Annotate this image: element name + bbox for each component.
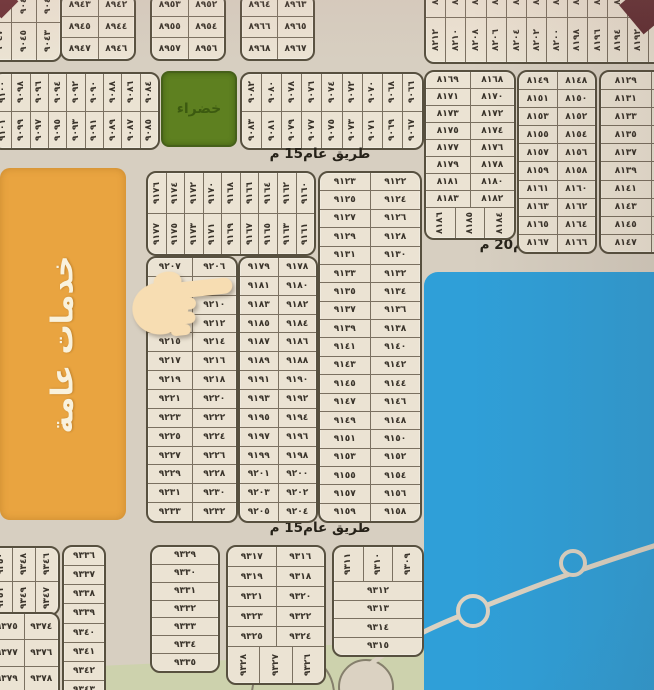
plot-row: ٩٣١٢ <box>334 582 422 600</box>
plot-parcel: ٩١٧٢ <box>184 173 203 213</box>
plot-parcel: ٩٣٧٤ <box>24 614 59 639</box>
plot-number: ٩١٦٦ <box>245 182 255 204</box>
plot-row: ٨١٥٥٨١٥٤ <box>519 125 595 143</box>
plot-number: ٨١٦٠ <box>565 184 587 194</box>
plot-parcel: ٩٢٠٠ <box>278 465 317 483</box>
plot-number: ٨١٨٣ <box>437 194 459 204</box>
plot-block-9309: ٩٣١١٩٣١٠٩٣٠٩ ٩٣١٢٩٣١٣٩٣١٤٩٣١٥ <box>332 545 424 657</box>
plot-parcel: ٩٣٢٧ <box>259 647 291 683</box>
plot-parcel: ٨١٣١ <box>601 90 651 107</box>
plot-parcel: ٨١٦٦ <box>557 235 596 252</box>
plot-number: ٩١٠١ <box>0 119 8 141</box>
plot-row: ٨١٦٥٨١٦٤ <box>519 216 595 234</box>
plot-number: ٩١٦٨ <box>226 182 236 204</box>
plot-parcel: ٩٣٤٧ <box>35 582 58 615</box>
plot-row: ٩٣٣٧ <box>64 565 104 584</box>
plot-number: ٨١٨٤ <box>495 212 505 234</box>
plot-number: ٩٠٨٩ <box>108 119 118 141</box>
plot-parcel: ٩٠٩٩ <box>11 112 29 149</box>
plot-number: ٨١٥٣ <box>527 112 549 122</box>
plot-parcel: ٨١٩٦ <box>587 18 607 63</box>
plot-grid: ٩٣٧٥٩٣٧٤٩٣٧٧٩٣٧٦٩٣٧٩٩٣٧٨٩٣٨١٩٣٨٠ <box>0 614 58 690</box>
plot-parcel: ٨١٦١ <box>519 181 557 198</box>
plot-row: ٨١٤٣٨١٤٢ <box>601 198 654 216</box>
plot-number: ٩١٨٣ <box>248 300 270 310</box>
plot-number: ٩٠٩٢ <box>71 81 81 103</box>
plot-parcel: ٩٣١٥ <box>334 638 422 656</box>
plot-row: ٩١٩٧٩١٩٦ <box>240 427 316 446</box>
plot-parcel: ٨١٥٠ <box>557 90 596 107</box>
plot-number: ٨٩٥٧ <box>159 44 181 54</box>
plot-parcel: ٩٣٤٣ <box>64 681 104 690</box>
plot-parcel: ٩١٩٦ <box>278 428 317 446</box>
plot-block-8963: ٨٩٦٤٨٩٦٣٨٩٦٦٨٩٦٥٨٩٦٨٨٩٦٧ <box>240 0 315 61</box>
plot-parcel: ٩١٤٧ <box>320 394 370 411</box>
plot-row: ٩١٣٩٩١٣٨ <box>320 319 420 337</box>
plot-number: ٨١٧٠ <box>481 92 503 102</box>
plot-parcel: ٩٠٧٧ <box>301 112 321 149</box>
plot-number: ٩٠٧١ <box>367 119 377 141</box>
plot-number: ٩١٦٧ <box>245 223 255 245</box>
plot-number: ٩٣٧٦ <box>30 648 52 658</box>
plot-parcel: ٩٠٩٧ <box>30 112 48 149</box>
plot-number: ٩٢٠١ <box>248 469 270 479</box>
plot-parcel: ٨١٥٦ <box>557 144 596 161</box>
plot-block-9316: ٩٣١٧٩٣١٦٩٣١٩٩٣١٨٩٣٢١٩٣٢٠٩٣٢٣٩٣٢٢٩٣٢٥٩٣٢٤… <box>226 545 326 685</box>
plot-parcel: ٩١٤٠ <box>370 338 421 355</box>
plot-number: ٩٢٠٥ <box>248 507 270 517</box>
plot-number: ٩٣٤٦ <box>42 553 52 575</box>
plot-number: ٩٣٢٦ <box>303 654 313 676</box>
plot-parcel: ٨٢٠٧ <box>486 0 506 17</box>
plot-number: ٩٣٣٤ <box>174 640 196 650</box>
plot-parcel: ٩١٦٣ <box>277 214 296 254</box>
plot-parcel: ٩٠٤٣ <box>36 23 60 61</box>
plot-number: ٩٣٤٨ <box>19 553 29 575</box>
plot-row: ٩١٤٣٩١٤٢ <box>320 356 420 374</box>
plot-number: ٨١٧١ <box>437 92 459 102</box>
plot-row: ٩٢٠٥٩٢٠٤ <box>240 502 316 521</box>
plot-parcel: ٩١٦٠ <box>296 173 315 213</box>
plot-number: ٩٠٧٧ <box>307 119 317 141</box>
plot-row: ٩٣١٣ <box>334 600 422 619</box>
plot-parcel: ٩١٩١ <box>240 371 278 389</box>
plot-number: ٩٣٣٣ <box>174 622 196 632</box>
plot-number: ٩١٤٠ <box>384 342 406 352</box>
plot-row: ٩٣٢٥٩٣٢٤ <box>228 626 324 646</box>
plot-number: ٩١٨٦ <box>286 337 308 347</box>
plot-number: ٨٩٥٣ <box>159 0 181 10</box>
plot-number: ٨٢٠١ <box>552 0 562 5</box>
plot-number: ٨١٦٨ <box>481 75 503 85</box>
plot-number: ٨١٥٧ <box>527 148 549 158</box>
plot-grid: ٨٩٦٤٨٩٦٣٨٩٦٦٨٩٦٥٨٩٦٨٨٩٦٧ <box>242 0 313 59</box>
plot-row: ٩١٤٥٩١٤٤ <box>320 374 420 392</box>
plot-parcel: ٩٣٥١ <box>0 582 12 615</box>
plot-parcel: ٩٣٢٠ <box>276 587 325 606</box>
plot-parcel: ٩٢٢٥ <box>148 428 192 446</box>
plot-row: ٩٢١٧٩٢١٦ <box>148 351 236 370</box>
plot-parcel: ٩١٤٩ <box>320 412 370 429</box>
plot-parcel: ٩١٢٢ <box>370 173 421 190</box>
plot-number: ٨١٣٥ <box>615 130 637 140</box>
plot-parcel: ٩٣١٤ <box>334 619 422 637</box>
plot-number: ٨٩٥٦ <box>195 44 217 54</box>
plot-row: ٩١٠٠٩٠٩٨٩٠٩٦٩٠٩٤٩٠٩٢٩٠٩٠٩٠٨٨٩٠٨٦٩٠٨٤ <box>0 74 158 111</box>
plot-parcel: ٨١٤٦ <box>651 235 654 252</box>
plot-row: ٨١٦٩٨١٦٨ <box>426 72 514 88</box>
plot-row: ٨١٣٣٨١٣٢ <box>601 107 654 125</box>
plot-number: ٨١٩٦ <box>592 29 602 51</box>
plot-parcel: ٩٠٩١ <box>85 112 103 149</box>
plot-parcel: ٨١٨٦ <box>426 208 455 238</box>
plot-number: ٩١٥١ <box>334 434 356 444</box>
plot-parcel: ٩١٢٤ <box>370 191 421 208</box>
plot-parcel: ٩١٣٩ <box>320 320 370 337</box>
plot-number: ٩٢٠٣ <box>248 488 270 498</box>
plot-number: ٩٣١٥ <box>367 641 389 651</box>
plot-row: ٩١٨٥٩١٨٤ <box>240 314 316 333</box>
plot-number: ٩٣٢٢ <box>289 612 311 622</box>
plot-parcel: ٩١٣١ <box>320 247 370 264</box>
plot-number: ٨٢٠٢ <box>532 29 542 51</box>
plot-parcel: ٩٢٠٥ <box>240 503 278 521</box>
plot-parcel: ٩١٥٠ <box>370 430 421 447</box>
plot-parcel: ٨١٧٨ <box>470 157 515 173</box>
plot-parcel: ٩٠٩٣ <box>66 112 84 149</box>
plot-row: ٩٠٨٢٩٠٨٠٩٠٧٨٩٠٧٦٩٠٧٤٩٠٧٢٩٠٧٠٩٠٦٨٩٠٦٦ <box>242 74 422 111</box>
plot-number: ٩٢٢٨ <box>203 469 225 479</box>
plot-number: ٨١٦٦ <box>565 238 587 248</box>
plot-parcel: ٨٩٦٥ <box>277 17 313 38</box>
plot-number: ٩١٥٦ <box>384 489 406 499</box>
plot-parcel: ٩٢٣٠ <box>192 484 237 502</box>
plot-number: ٩٠٧٨ <box>287 81 297 103</box>
plot-parcel: ٩٣٥٠ <box>0 548 12 581</box>
plot-parcel: ٨٩٤٢ <box>98 0 135 16</box>
plot-number: ٩١٤٨ <box>384 416 406 426</box>
plot-block-9336-strip: ٩٣٣٦٩٣٣٧٩٣٣٨٩٣٣٩٩٣٤٠٩٣٤١٩٣٤٢٩٣٤٣ <box>62 545 106 690</box>
plot-number: ٩٠٤٢ <box>43 0 53 14</box>
plot-parcel: ٩٠٨٣ <box>242 112 261 149</box>
plot-number: ٩٠٩١ <box>89 119 99 141</box>
plot-number: ٩٣٣٦ <box>73 551 95 561</box>
plot-row: ٩٢٠٣٩٢٠٢ <box>240 483 316 502</box>
plot-number: ٨١٦٢ <box>565 202 587 212</box>
plot-number: ٨١٨١ <box>437 177 459 187</box>
plot-number: ٩٣٧٩ <box>0 674 18 684</box>
plot-row: ٩٣٢٣٩٣٢٢ <box>228 606 324 626</box>
plot-parcel: ٨٩٦٨ <box>242 38 277 59</box>
plot-number: ٩٣٣١ <box>174 586 196 596</box>
plot-parcel: ٩١٢٧ <box>320 210 370 227</box>
plot-parcel: ٩٠٨٧ <box>121 112 139 149</box>
plot-parcel: ٩١٦٨ <box>221 173 240 213</box>
plot-number: ٩٣٣٧ <box>73 570 95 580</box>
plot-parcel: ٩٣٢٥ <box>228 627 276 646</box>
plot-row: ٩٣١٥ <box>334 637 422 656</box>
plot-number: ٩٣٣٢ <box>174 604 196 614</box>
plot-number: ٩١٨٨ <box>286 356 308 366</box>
plot-number: ٩٣١٠ <box>373 553 383 575</box>
plot-number: ٩٠٦٦ <box>407 81 417 103</box>
plot-row: ٨١٥٧٨١٥٦ <box>519 143 595 161</box>
plot-parcel: ٨١٥٧ <box>519 144 557 161</box>
plot-parcel: ٩٢١٩ <box>148 371 192 389</box>
plot-parcel: ٩٣١٣ <box>334 601 422 619</box>
plot-parcel: ٨١٣٩ <box>601 162 651 179</box>
plot-number: ٩٢١٦ <box>203 356 225 366</box>
plot-number: ٩١٣٠ <box>384 250 406 260</box>
plot-parcel: ٩٢٣٢ <box>192 503 237 521</box>
plot-row: ٨٩٦٨٨٩٦٧ <box>242 37 313 59</box>
plot-parcel: ٨١٧٧ <box>426 140 470 156</box>
plot-number: ٩٢٢٠ <box>203 394 225 404</box>
plot-number: ٩١٩٣ <box>248 394 270 404</box>
plot-row: ٩٣٣٦ <box>64 547 104 565</box>
plot-row: ٨١٥١٨١٥٠ <box>519 89 595 107</box>
plot-row: ٩٣٣٨ <box>64 584 104 603</box>
plot-number: ٩٣١٧ <box>241 552 263 562</box>
plot-block-9178: ٩١٧٩٩١٧٨٩١٨١٩١٨٠٩١٨٣٩١٨٢٩١٨٥٩١٨٤٩١٨٧٩١٨٦… <box>238 256 318 523</box>
plot-number: ٨٢٠٦ <box>491 29 501 51</box>
plot-parcel: ٩١٥٣ <box>320 449 370 466</box>
plot-number: ٨١٧٤ <box>481 126 503 136</box>
plot-parcel: ٩٣٤٦ <box>35 548 58 581</box>
plot-parcel: ٨٩٤٤ <box>98 17 135 38</box>
plot-parcel: ٩١٤٨ <box>370 412 421 429</box>
plot-parcel: ٨١٦٤ <box>557 217 596 234</box>
plot-number: ٩٠٧٠ <box>367 81 377 103</box>
plot-row: ٨٩٥٥٨٩٥٤ <box>152 16 224 38</box>
plot-number: ٩١٩٨ <box>286 451 308 461</box>
plot-number: ٨٢٠٥ <box>512 0 522 5</box>
plot-parcel: ٩١٧٥ <box>166 214 185 254</box>
plot-grid: ٩١٧٩٩١٧٨٩١٨١٩١٨٠٩١٨٣٩١٨٢٩١٨٥٩١٨٤٩١٨٧٩١٨٦… <box>240 258 316 521</box>
plot-parcel: ٨١٦٧ <box>519 235 557 252</box>
plot-number: ٩٠٨٥ <box>144 119 154 141</box>
plot-number: ٩٠٨٢ <box>247 81 257 103</box>
plot-row: ٨١٣٩٨١٣٨ <box>601 161 654 179</box>
plot-row: ٩٣٧٩٩٣٧٨ <box>0 666 58 690</box>
plot-parcel: ٩١٨٧ <box>240 333 278 351</box>
plot-parcel: ٩١٢٨ <box>370 228 421 245</box>
plot-number: ٨١٨٥ <box>465 212 475 234</box>
plot-row: ٩١٥١٩١٥٠ <box>320 429 420 447</box>
plot-parcel: ٨١٣٠ <box>651 90 654 107</box>
plot-row: ٩٣٣٤ <box>152 635 218 653</box>
plot-number: ٩١٩٩ <box>248 451 270 461</box>
plot-number: ٩٠٨٤ <box>144 81 154 103</box>
plot-parcel: ٩٣٣٦ <box>64 547 104 565</box>
plot-parcel: ٨١٣٤ <box>651 126 654 143</box>
plot-number: ٨٢١٢ <box>431 29 441 51</box>
plot-number: ٨٩٥٢ <box>195 0 217 10</box>
plot-number: ٩١٧٥ <box>170 223 180 245</box>
plot-number: ٨٢٠٩ <box>471 0 481 5</box>
plot-number: ٩١٣٧ <box>334 305 356 315</box>
plot-parcel: ٩٠٨٦ <box>121 74 139 111</box>
plot-parcel: ٩٢٠٢ <box>278 484 317 502</box>
plot-number: ٩٢٢١ <box>159 394 181 404</box>
plot-blocks-layer: ٩٠٤٦٩٠٤٤٩٠٤٢٩٠٤٧٩٠٤٥٩٠٤٣ ٨٩٤٣٨٩٤٢٨٩٤٥٨٩٤… <box>0 0 654 690</box>
plot-number: ٨٩٤٧ <box>69 44 91 54</box>
plot-number: ٩٣١٦ <box>289 552 311 562</box>
plot-parcel: ٩٠٩٠ <box>85 74 103 111</box>
plot-number: ٨١٣٩ <box>615 166 637 176</box>
plot-number: ٨١٤٩ <box>527 76 549 86</box>
plot-number: ٩١٣٣ <box>334 269 356 279</box>
plot-number: ٨١٩٨ <box>572 29 582 51</box>
plot-row: ٩١٩٣٩١٩٢ <box>240 389 316 408</box>
plot-parcel: ٩١٨٠ <box>278 277 317 295</box>
plot-parcel: ٨١٥٩ <box>519 162 557 179</box>
plot-parcel: ٨١٧٠ <box>470 89 515 105</box>
plot-number: ٩٣٧٥ <box>0 622 18 632</box>
plot-grid: ٩١٠٠٩٠٩٨٩٠٩٦٩٠٩٤٩٠٩٢٩٠٩٠٩٠٨٨٩٠٨٦٩٠٨٤٩١٠١… <box>0 74 158 148</box>
plot-row: ٩١٨٧٩١٨٦ <box>240 332 316 351</box>
public-services-label: خدمات عامة <box>46 255 81 433</box>
plot-number: ٩٣٧٨ <box>30 674 52 684</box>
plot-number: ٩٣٤١ <box>73 647 95 657</box>
plot-parcel: ٩٣٧٩ <box>0 667 24 690</box>
plot-number: ٨١٥١ <box>527 94 549 104</box>
plot-row: ٩١٢٥٩١٢٤ <box>320 190 420 208</box>
cadastral-map: ٩٠٤٦٩٠٤٤٩٠٤٢٩٠٤٧٩٠٤٥٩٠٤٣ ٨٩٤٣٨٩٤٢٨٩٤٥٨٩٤… <box>0 0 654 690</box>
plot-parcel: ٩٣٢٨ <box>228 647 259 683</box>
plot-parcel: ٨١٧٢ <box>470 106 515 122</box>
plot-block-9084-strip: ٩١٠٠٩٠٩٨٩٠٩٦٩٠٩٤٩٠٩٢٩٠٩٠٩٠٨٨٩٠٨٦٩٠٨٤٩١٠١… <box>0 72 160 150</box>
plot-grid: ٩٣٥٠٩٣٤٨٩٣٤٦٩٣٥١٩٣٤٩٩٣٤٧ <box>0 548 58 614</box>
plot-parcel: ٨٢٠١ <box>546 0 566 17</box>
plot-row: ٩٣٤٠ <box>64 623 104 642</box>
plot-parcel: ٨٩٦٤ <box>242 0 277 16</box>
plot-parcel: ٨٩٥٢ <box>188 0 225 16</box>
plot-parcel: ٩٠٦٨ <box>382 74 402 111</box>
plot-row: ٩٣٧٥٩٣٧٤ <box>0 614 58 639</box>
plot-row: ٩٢٢٥٩٢٢٤ <box>148 427 236 446</box>
plot-number: ٩٢١٨ <box>203 375 225 385</box>
plot-row: ٨١٥٩٨١٥٨ <box>519 161 595 179</box>
plot-parcel: ٩١٥٩ <box>320 504 370 521</box>
plot-parcel: ٩١٨٢ <box>278 296 317 314</box>
plot-row: ٩١٤٩٩١٤٨ <box>320 411 420 429</box>
plot-number: ٨١٥٤ <box>565 130 587 140</box>
plot-row: ٩١٤١٩١٤٠ <box>320 337 420 355</box>
plot-number: ٨٩٦٣ <box>285 0 307 10</box>
plot-row: ٨١٣٥٨١٣٤ <box>601 125 654 143</box>
plot-number: ٩١٤٤ <box>384 379 406 389</box>
plot-parcel: ٩٠٨١ <box>261 112 281 149</box>
plot-parcel: ٩٠٩٤ <box>48 74 66 111</box>
plot-parcel: ٨٢٠٣ <box>526 0 546 17</box>
plot-number: ٩٣١٢ <box>367 586 389 596</box>
plot-parcel: ٩٠٧٦ <box>301 74 321 111</box>
plot-number: ٩١٥٣ <box>334 452 356 462</box>
plot-number: ٩١٧٣ <box>189 223 199 245</box>
plot-parcel: ٨٢١١ <box>445 0 465 17</box>
plot-number: ٨١٩٤ <box>613 29 623 51</box>
plot-row: ٩١٣٥٩١٣٤ <box>320 282 420 300</box>
plot-parcel: ٩١٨٤ <box>278 315 317 333</box>
plot-number: ٨١٥٨ <box>565 166 587 176</box>
plot-parcel: ٩١٦٦ <box>240 173 259 213</box>
plot-number: ٩٣١٩ <box>241 572 263 582</box>
plot-parcel: ٩٠٧٣ <box>342 112 362 149</box>
plot-parcel: ٨١٧٣ <box>426 106 470 122</box>
plot-number: ٩١٧٨ <box>286 262 308 272</box>
plot-row: ٩١٧٦٩١٧٤٩١٧٢٩١٧٠٩١٦٨٩١٦٦٩١٦٤٩١٦٢٩١٦٠ <box>148 173 314 213</box>
plot-number: ٩٢٢٣ <box>159 413 181 423</box>
plot-number: ٩١٩٠ <box>286 375 308 385</box>
plot-parcel: ٩٣٧٥ <box>0 614 24 639</box>
plot-row: ٨١٤١٨١٤٠ <box>601 180 654 198</box>
plot-row: ٩٣٣١ <box>152 582 218 600</box>
plot-parcel: ٩١٧٠ <box>203 173 222 213</box>
plot-parcel: ٩٣٤٨ <box>12 548 35 581</box>
plot-parcel: ٩١٩٣ <box>240 390 278 408</box>
green-plot-label: خضراء <box>177 101 222 117</box>
plot-number: ٨٢١٣ <box>431 0 441 5</box>
plot-parcel: ٩١٩٩ <box>240 447 278 465</box>
plot-row: ٩٣٣٢ <box>152 600 218 618</box>
plot-number: ٩١٧٧ <box>152 223 162 245</box>
plot-parcel: ٩١٣٣ <box>320 265 370 282</box>
plot-grid: ٩١٢٣٩١٢٢٩١٢٥٩١٢٤٩١٢٧٩١٢٦٩١٢٩٩١٢٨٩١٣١٩١٣٠… <box>320 173 420 521</box>
plot-number: ٨٢٠٤ <box>512 29 522 51</box>
plot-parcel: ٨١٤٩ <box>519 72 557 89</box>
plot-row: ٩٢٢٣٩٢٢٢ <box>148 408 236 427</box>
plot-parcel: ٩٠٧٢ <box>342 74 362 111</box>
plot-number: ٨١٥٩ <box>527 166 549 176</box>
plot-parcel: ٩١٦٩ <box>221 214 240 254</box>
plot-row: ٩٣٥٠٩٣٤٨٩٣٤٦ <box>0 548 58 581</box>
plot-number: ٩٣٢٣ <box>241 612 263 622</box>
plot-number: ٩٣٣٨ <box>73 589 95 599</box>
plot-number: ٩١٥٤ <box>384 471 406 481</box>
plot-parcel: ٩١٣٠ <box>370 247 421 264</box>
plot-number: ٩١٢٣ <box>334 177 356 187</box>
plot-parcel: ٩٢٢١ <box>148 390 192 408</box>
plot-parcel: ٩١٤٥ <box>320 375 370 392</box>
plot-row: ٨١٤٩٨١٤٨ <box>519 72 595 89</box>
plot-parcel: ٩٢٢٧ <box>148 447 192 465</box>
plot-row: ٩٣١٤ <box>334 618 422 637</box>
plot-parcel: ٩١٤٦ <box>370 394 421 411</box>
plot-parcel: ٨٩٥٤ <box>188 17 225 38</box>
plot-parcel: ٩٢٢٦ <box>192 447 237 465</box>
plot-parcel: ٩٣٤١ <box>64 643 104 661</box>
plot-row: ٩٠٤٧٩٠٤٥٩٠٤٣ <box>0 22 60 61</box>
plot-block-9346: ٩٣٥٠٩٣٤٨٩٣٤٦٩٣٥١٩٣٤٩٩٣٤٧ <box>0 546 60 616</box>
plot-row: ٩١٨١٩١٨٠ <box>240 276 316 295</box>
plot-parcel: ٨١٨٢ <box>470 191 515 207</box>
plot-number: ٩١٩٤ <box>286 413 308 423</box>
plot-number: ٨٩٦٤ <box>249 0 271 10</box>
green-plot: خضراء <box>161 71 237 147</box>
plot-number: ٨١٤١ <box>615 184 637 194</box>
plot-row: ٨١٤٥٨١٤٤ <box>601 216 654 234</box>
plot-row: ٨١٨٣٨١٨٢ <box>426 190 514 207</box>
plot-number: ٨١٧٣ <box>437 109 459 119</box>
plot-parcel: ٨١٩٧ <box>587 0 607 17</box>
plot-row: ٨٢١٢٨٢١٠٨٢٠٨٨٢٠٦٨٢٠٤٨٢٠٢٨٢٠٠٨١٩٨٨١٩٦٨١٩٤… <box>426 17 654 63</box>
plot-parcel: ٨١٤٨ <box>557 72 596 89</box>
plot-grid: ٩١٧٦٩١٧٤٩١٧٢٩١٧٠٩١٦٨٩١٦٦٩١٦٤٩١٦٢٩١٦٠٩١٧٧… <box>148 173 314 254</box>
plot-number: ٨١٨٢ <box>481 194 503 204</box>
plot-number: ٨١٦٣ <box>527 202 549 212</box>
plot-number: ٩١٨٧ <box>248 337 270 347</box>
